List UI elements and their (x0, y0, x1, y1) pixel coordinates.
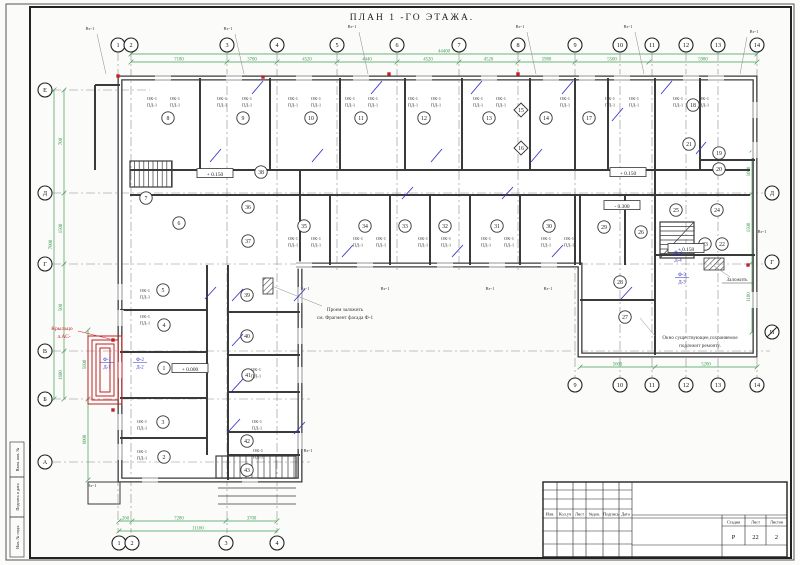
svg-text:ОК-1: ОК-1 (481, 236, 492, 241)
dimension-label: 5980 (698, 57, 708, 62)
svg-text:ОК-1: ОК-1 (251, 367, 262, 372)
dim-col-left: 70015005001600 (59, 88, 66, 402)
svg-text:25: 25 (673, 208, 679, 214)
svg-text:4: 4 (275, 42, 278, 49)
window-tag: ОК-1ПД-1 (288, 96, 299, 108)
room-number-bubble: 6 (173, 217, 185, 229)
dim-row-right-wing: 56005200 (578, 362, 760, 369)
svg-text:38: 38 (258, 170, 264, 176)
svg-text:11: 11 (649, 42, 655, 49)
svg-text:ПД-1: ПД-1 (564, 243, 575, 248)
svg-text:1: 1 (116, 42, 119, 49)
room-number-bubble: 22 (716, 238, 728, 250)
svg-text:ПД-1: ПД-1 (217, 103, 228, 108)
vent-tag: Вт-1 (348, 24, 358, 29)
leader-line (740, 37, 747, 74)
svg-text:39: 39 (244, 293, 250, 299)
window-tag: ОК-1ПД-1 (217, 96, 228, 108)
svg-text:7: 7 (145, 196, 148, 202)
axis-bubble: В (38, 344, 52, 358)
dimension-label: 11160 (192, 526, 204, 531)
window-tag: ОК-1ПД-1 (242, 96, 253, 108)
room-number-bubble: 4 (158, 319, 170, 331)
room-number-bubble: 19 (713, 147, 725, 159)
svg-text:+ 0.150: + 0.150 (207, 172, 224, 178)
vent-tag: Вт-1 (544, 286, 554, 291)
svg-text:ПД-1: ПД-1 (311, 243, 322, 248)
window-tag: ОК-1ПД-1 (147, 96, 158, 108)
svg-text:ПД-1: ПД-1 (629, 103, 640, 108)
room-number-bubble: 11 (355, 112, 367, 124)
window-tag: ОК-1ПД-1 (541, 236, 552, 248)
svg-text:40: 40 (244, 334, 250, 340)
room-number-bubble: 18 (687, 99, 699, 111)
sheet-number: 22 (752, 534, 758, 541)
stage-label: Стадия (727, 520, 740, 525)
window-tag: ОК-1ПД-1 (376, 236, 387, 248)
window-tag: ОК-1ПД-1 (288, 236, 299, 248)
axis-bubble: 3 (220, 38, 234, 52)
room-number-bubble: 28 (614, 276, 626, 288)
dim-row-top: 718037004520444045204520598055005980 (129, 57, 760, 64)
svg-text:ОК-1: ОК-1 (673, 96, 684, 101)
window-opening (751, 102, 758, 118)
axis-bubble: 13 (711, 378, 725, 392)
sheets-total: 2 (775, 534, 778, 541)
svg-text:14: 14 (543, 116, 549, 122)
window-tag: ОК-1ПД-1 (564, 236, 575, 248)
axis-bubble: 4 (270, 38, 284, 52)
window-opening (541, 261, 557, 268)
svg-text:Ф-3: Ф-3 (674, 251, 682, 256)
room-number-bubble: 24 (711, 204, 723, 216)
room-number-bubble: 9 (237, 112, 249, 124)
svg-text:ПД-1: ПД-1 (252, 426, 263, 431)
window-tag: ОК-1ПД-1 (253, 448, 264, 460)
window-opening (296, 328, 303, 344)
dimension-label: 5600 (613, 362, 623, 367)
svg-text:42: 42 (244, 439, 250, 445)
svg-text:ОК-1: ОК-1 (140, 314, 151, 319)
sheet-label: Лист (751, 520, 760, 525)
room-number-bubble: 21 (683, 138, 695, 150)
room-number-bubble: 13 (483, 112, 495, 124)
window-tag: ОК-1ПД-1 (629, 96, 640, 108)
svg-text:Ф-2: Ф-2 (136, 358, 144, 363)
stamp-col-koluch: Кол.уч (559, 512, 572, 517)
stamp-col-list: Лист (575, 512, 584, 517)
svg-text:Д-1: Д-1 (103, 366, 111, 371)
window-tag: ОК-1ПД-1 (605, 96, 616, 108)
svg-text:ПД-1: ПД-1 (441, 243, 452, 248)
axis-bubble: Д (38, 186, 52, 200)
dim-row-bottom-total: 11160 (117, 526, 280, 533)
dimension-label: 700 (59, 137, 64, 145)
axis-bubble: 9 (568, 38, 582, 52)
fragment-tag: Ф-1Д-1 (100, 358, 114, 371)
svg-text:ПД-1: ПД-1 (242, 103, 253, 108)
svg-text:24: 24 (714, 208, 720, 214)
svg-text:ОК-1: ОК-1 (217, 96, 228, 101)
room-number-bubble: 27 (619, 311, 631, 323)
window-tag: ОК-1ПД-1 (311, 236, 322, 248)
leader-line (635, 32, 644, 74)
svg-text:2: 2 (130, 540, 133, 547)
dimension-label: 7280 (174, 516, 184, 521)
window-opening (296, 261, 312, 268)
vent-tag: Вт-1 (624, 24, 634, 29)
svg-text:ОК-1: ОК-1 (140, 288, 151, 293)
reference-dot (111, 338, 114, 341)
svg-text:ОК-1: ОК-1 (473, 96, 484, 101)
axis-bubble: 11 (645, 38, 659, 52)
reference-dot (746, 263, 749, 266)
svg-text:3: 3 (224, 540, 227, 547)
svg-text:ПД-1: ПД-1 (137, 426, 148, 431)
window-opening (155, 74, 171, 81)
room-number-bubble: 25 (670, 204, 682, 216)
vent-tag: Вт-1 (516, 24, 526, 29)
room-number-bubble: 1 (158, 362, 170, 374)
svg-text:14: 14 (754, 42, 760, 49)
dimension-label: 4520 (423, 57, 433, 62)
window-opening (481, 74, 497, 81)
svg-text:ОК-1: ОК-1 (699, 96, 710, 101)
window-opening (226, 74, 242, 81)
room-number-bubble: 32 (439, 220, 451, 232)
room-number-bubble: 26 (635, 226, 647, 238)
room-number-bubble: 33 (399, 220, 411, 232)
svg-text:ПД-1: ПД-1 (418, 243, 429, 248)
axis-bubble: Г (765, 255, 779, 269)
svg-text:ОК-1: ОК-1 (368, 96, 379, 101)
window-opening (116, 414, 123, 430)
svg-text:ОК-1: ОК-1 (560, 96, 571, 101)
window-opening (683, 74, 699, 81)
svg-text:5: 5 (162, 288, 165, 294)
room-number-bubble: 10 (305, 112, 317, 124)
svg-text:+ 0.000: + 0.000 (182, 367, 199, 373)
dimension-label: 3700 (247, 516, 257, 521)
svg-text:+ 0.150: + 0.150 (620, 171, 637, 177)
svg-text:11: 11 (358, 116, 364, 122)
room-number-bubble: 20 (713, 163, 725, 175)
svg-text:ОК-1: ОК-1 (252, 419, 263, 424)
axis-bubble: 14 (750, 378, 764, 392)
svg-text:ПД-1: ПД-1 (481, 243, 492, 248)
window-opening (296, 367, 303, 383)
svg-text:ПД-1: ПД-1 (353, 243, 364, 248)
svg-text:ОК-1: ОК-1 (605, 96, 616, 101)
svg-text:ПД-1: ПД-1 (560, 103, 571, 108)
room-number-bubble: 7 (140, 192, 152, 204)
dimension-label: 5600 (83, 359, 88, 369)
window-tag: ОК-1ПД-1 (140, 288, 151, 300)
window-tag: ОК-1ПД-1 (345, 96, 356, 108)
svg-text:ПД-1: ПД-1 (345, 103, 356, 108)
window-tag: ОК-1ПД-1 (431, 96, 442, 108)
svg-text:Е: Е (43, 87, 47, 94)
room-number-bubble: 43 (241, 464, 253, 476)
svg-text:Ф-1: Ф-1 (103, 358, 111, 363)
dimension-label: 5200 (701, 362, 711, 367)
stamp-col-data: Дата (621, 512, 630, 517)
room-number-bubble: 39 (241, 289, 253, 301)
dimension-label: 44400 (438, 49, 451, 54)
reference-dot (111, 408, 114, 411)
dimension-label: 1060 (747, 166, 752, 176)
svg-text:2: 2 (163, 455, 166, 461)
margin-label: Инв. № подл. (15, 525, 20, 549)
svg-text:36: 36 (245, 205, 251, 211)
dimension-label: 1500 (747, 222, 752, 232)
porch-leader (78, 331, 110, 339)
dimension-label: 5980 (542, 57, 552, 62)
svg-text:12: 12 (683, 42, 689, 49)
elevation-mark: + 0.000 (172, 364, 208, 373)
svg-text:ОК-1: ОК-1 (170, 96, 181, 101)
room-number-bubble: 8 (162, 112, 174, 124)
svg-text:ПД-1: ПД-1 (140, 321, 151, 326)
title-block: Изм. Кол.уч Лист №док. Подпись Дата Стад… (543, 482, 787, 557)
vent-tag: Вт-1 (224, 26, 234, 31)
window-tag: ОК-1ПД-1 (441, 236, 452, 248)
svg-text:26: 26 (638, 230, 644, 236)
window-tag: ОК-1ПД-1 (473, 96, 484, 108)
svg-text:ПД-1: ПД-1 (251, 374, 262, 379)
svg-text:3: 3 (162, 420, 165, 426)
svg-text:ОК-1: ОК-1 (441, 236, 452, 241)
room-number-bubble: 40 (241, 330, 253, 342)
svg-text:ПД-1: ПД-1 (288, 243, 299, 248)
svg-text:- 0.300: - 0.300 (614, 204, 630, 210)
floor-plan-drawing: 7180370045204440452045205980550059804440… (0, 0, 800, 565)
dim-row-bottom: 26072803700 (117, 516, 280, 523)
dimension-label: 5500 (607, 57, 617, 62)
vent-tag: Вт-1 (486, 286, 496, 291)
axis-bubble: 3 (219, 536, 233, 550)
window-opening (751, 142, 758, 158)
svg-text:Окно существующее,сохраняемое: Окно существующее,сохраняемое (662, 335, 738, 341)
dimension-label: 4520 (484, 57, 494, 62)
svg-text:19: 19 (716, 151, 722, 157)
margin-stamp: Взам. инв. № Подпись и дата Инв. № подл. (10, 442, 24, 557)
vent-tag: Вт-1 (758, 229, 768, 234)
svg-text:ПД-1: ПД-1 (504, 243, 515, 248)
infill-hatch (704, 258, 724, 270)
margin-label: Взам. инв. № (15, 448, 20, 472)
stamp-col-izm: Изм. (546, 512, 555, 517)
svg-text:17: 17 (586, 116, 592, 122)
dimension-label: 500 (59, 303, 64, 311)
axis-bubble: 13 (711, 38, 725, 52)
elevation-mark: + 0.150 (610, 168, 646, 177)
svg-text:Проем заложить: Проем заложить (327, 307, 364, 313)
axis-bubble: 7 (452, 38, 466, 52)
svg-text:2: 2 (129, 42, 132, 49)
svg-text:см. Фрагмент фасада Ф-1: см. Фрагмент фасада Ф-1 (317, 314, 374, 321)
room-number-bubble: 34 (359, 220, 371, 232)
reference-dot (387, 72, 390, 75)
svg-text:ОК-1: ОК-1 (504, 236, 515, 241)
window-opening (116, 310, 123, 326)
dimension-label: 6000 (83, 434, 88, 444)
window-tag: ОК-1ПД-1 (699, 96, 710, 108)
svg-text:Г: Г (43, 261, 47, 268)
svg-text:13: 13 (715, 382, 721, 389)
svg-text:22: 22 (719, 242, 725, 248)
window-tag: ОК-1ПД-1 (368, 96, 379, 108)
window-tag: ОК-1ПД-1 (140, 314, 151, 326)
stamp-col-doc: №док. (589, 512, 601, 517)
svg-text:29: 29 (601, 225, 607, 231)
svg-text:14: 14 (754, 382, 760, 389)
svg-text:Д-3: Д-3 (678, 281, 686, 286)
svg-text:33: 33 (402, 224, 408, 230)
svg-text:ОК-1: ОК-1 (408, 96, 419, 101)
svg-text:ПД-1: ПД-1 (368, 103, 379, 108)
vent-tag: Вт-1 (86, 26, 96, 31)
room-number-bubble: 42 (241, 435, 253, 447)
axis-bubble: 10 (613, 38, 627, 52)
dimension-label: 1600 (59, 370, 64, 380)
window-tag: ОК-1ПД-1 (504, 236, 515, 248)
svg-text:ОК-1: ОК-1 (137, 449, 148, 454)
svg-text:32: 32 (442, 224, 448, 230)
svg-text:ПД-1: ПД-1 (147, 103, 158, 108)
window-tag: ОК-1ПД-1 (137, 449, 148, 461)
elevation-mark: - 0.300 (604, 201, 640, 210)
svg-text:ОК-1: ОК-1 (253, 448, 264, 453)
axis-bubble: И (765, 325, 779, 339)
dimension-label: 260 (122, 516, 130, 521)
window-opening (437, 261, 453, 268)
note-porch: Крыльцол.АС- (51, 326, 73, 340)
building-footprint (120, 78, 755, 480)
window-tag: ОК-1ПД-1 (252, 419, 263, 431)
vent-tag: Вт-1 (381, 286, 391, 291)
svg-text:ОК-1: ОК-1 (541, 236, 552, 241)
window-tag: ОК-1ПД-1 (251, 367, 262, 379)
margin-label: Подпись и дата (15, 483, 20, 510)
window-opening (142, 476, 158, 483)
svg-text:4: 4 (275, 540, 278, 547)
axis-bubble: А (38, 455, 52, 469)
room-number-bubble: 36 (242, 201, 254, 213)
svg-text:подлежит ремонту.: подлежит ремонту. (679, 343, 721, 349)
entry-steps (218, 488, 296, 504)
svg-text:ОК-1: ОК-1 (345, 96, 356, 101)
elevation-mark: + 0.150 (197, 169, 233, 178)
axis-bubble: 8 (511, 38, 525, 52)
room-number-bubble: 3 (157, 416, 169, 428)
svg-text:12: 12 (421, 116, 427, 122)
axis-bubble: Д (765, 186, 779, 200)
room-number-bubble: 29 (598, 221, 610, 233)
infill-hatch (263, 278, 273, 294)
room-number-bubble: 2 (158, 451, 170, 463)
svg-text:11: 11 (649, 382, 655, 389)
svg-text:27: 27 (622, 315, 628, 321)
axis-bubble: 4 (270, 536, 284, 550)
axis-bubble: Е (38, 83, 52, 97)
svg-text:Заложить: Заложить (727, 277, 749, 283)
window-tag: ОК-1ПД-1 (170, 96, 181, 108)
leader-line (359, 32, 368, 74)
svg-text:10: 10 (617, 42, 623, 49)
plan-generated-layer: 7180370045204440452045205980550059804440… (38, 24, 779, 550)
room-number-bubble: 37 (242, 235, 254, 247)
vent-tag: Вт-1 (304, 448, 314, 453)
svg-text:ПД-1: ПД-1 (288, 103, 299, 108)
window-tag: ОК-1ПД-1 (560, 96, 571, 108)
svg-text:ОК-1: ОК-1 (564, 236, 575, 241)
svg-text:Г: Г (770, 259, 774, 266)
vent-tag: Вт-1 (301, 286, 311, 291)
svg-text:ПД-1: ПД-1 (699, 103, 710, 108)
svg-text:ПД-1: ПД-1 (473, 103, 484, 108)
svg-text:20: 20 (716, 167, 722, 173)
room-number-bubble: 17 (583, 112, 595, 124)
svg-text:ПД-1: ПД-1 (253, 455, 264, 460)
room-number-bubble: 14 (540, 112, 552, 124)
svg-text:10: 10 (308, 116, 314, 122)
axis-bubble: 2 (124, 38, 138, 52)
svg-text:ПД-1: ПД-1 (408, 103, 419, 108)
reference-dot (261, 75, 264, 78)
axis-bubble: Б (38, 392, 52, 406)
svg-text:35: 35 (301, 224, 307, 230)
dimension-label: 7180 (174, 57, 184, 62)
dimension-label: 4440 (362, 57, 372, 62)
axis-bubble: 10 (613, 378, 627, 392)
svg-text:15: 15 (518, 108, 524, 114)
svg-text:ОК-1: ОК-1 (242, 96, 253, 101)
svg-text:1: 1 (117, 540, 120, 547)
window-opening (357, 261, 373, 268)
window-tag: ОК-1ПД-1 (496, 96, 507, 108)
svg-text:ПД-1: ПД-1 (140, 295, 151, 300)
dimension-label: 3700 (247, 57, 257, 62)
svg-text:Крыльцо: Крыльцо (51, 326, 73, 332)
window-opening (489, 261, 505, 268)
svg-text:ПД-1: ПД-1 (170, 103, 181, 108)
svg-text:ОК-1: ОК-1 (496, 96, 507, 101)
svg-text:ПД-1: ПД-1 (376, 243, 387, 248)
window-opening (751, 292, 758, 308)
svg-text:ПД-1: ПД-1 (311, 103, 322, 108)
svg-text:34: 34 (362, 224, 368, 230)
axis-bubble: 1 (111, 38, 125, 52)
axis-bubble: 9 (568, 378, 582, 392)
svg-text:ПД-1: ПД-1 (496, 103, 507, 108)
svg-text:ОК-1: ОК-1 (137, 419, 148, 424)
window-opening (296, 74, 312, 81)
svg-text:л.АС-: л.АС- (57, 334, 71, 340)
svg-text:30: 30 (546, 224, 552, 230)
svg-text:ОК-1: ОК-1 (311, 236, 322, 241)
svg-text:А: А (43, 459, 48, 466)
svg-text:ОК-1: ОК-1 (147, 96, 158, 101)
window-opening (116, 284, 123, 300)
room-number-bubble: 35 (298, 220, 310, 232)
dimension-label: 1500 (59, 223, 64, 233)
vent-tag: Вт-1 (88, 483, 98, 488)
window-opening (543, 74, 559, 81)
reference-dot (516, 72, 519, 75)
stage-value: Р (732, 534, 736, 541)
window-opening (353, 74, 369, 81)
